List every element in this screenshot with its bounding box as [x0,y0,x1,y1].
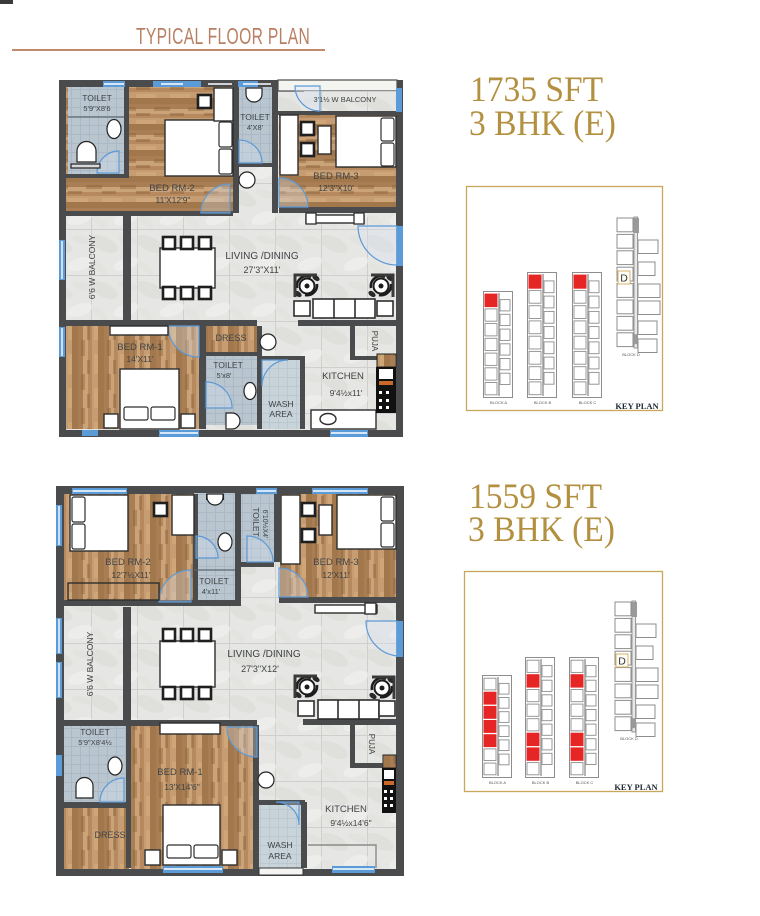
svg-text:BLOCK B: BLOCK B [532,780,550,785]
svg-text:BED RM-2: BED RM-2 [149,183,194,194]
svg-text:BED RM-3: BED RM-3 [313,171,358,182]
svg-text:WASH: WASH [267,840,292,850]
svg-text:27'3"X12': 27'3"X12' [241,664,279,674]
svg-text:13'X14'6": 13'X14'6" [164,782,200,792]
svg-text:TOILET: TOILET [251,507,261,537]
svg-text:D: D [620,273,628,285]
svg-text:12'X11': 12'X11' [322,570,350,580]
svg-text:KEY PLAN: KEY PLAN [615,401,659,411]
svg-text:TOILET: TOILET [213,360,243,370]
svg-text:D: D [618,656,626,668]
svg-text:BED RM-1: BED RM-1 [117,342,162,353]
svg-text:DRESS: DRESS [215,333,246,343]
svg-text:BLOCK D: BLOCK D [622,352,640,357]
svg-text:LIVING /DINING: LIVING /DINING [227,649,301,660]
svg-text:4'X8': 4'X8' [247,123,264,132]
svg-text:BED RM-1: BED RM-1 [157,767,202,778]
svg-text:27'3"X11': 27'3"X11' [244,265,281,275]
svg-text:9'4½x11': 9'4½x11' [330,388,363,398]
svg-text:TOILET: TOILET [199,576,229,586]
svg-text:PUJA: PUJA [370,331,379,352]
svg-text:KITCHEN: KITCHEN [325,804,367,815]
svg-text:BLOCK A: BLOCK A [490,400,507,405]
svg-text:KITCHEN: KITCHEN [322,371,364,382]
svg-text:LIVING /DINING: LIVING /DINING [225,251,299,262]
svg-text:KEY PLAN: KEY PLAN [614,782,658,792]
svg-text:12'3"X10': 12'3"X10' [318,183,354,193]
svg-text:AREA: AREA [268,851,291,861]
svg-text:BLOCK A: BLOCK A [489,780,506,785]
svg-text:11'X12'9": 11'X12'9" [156,195,191,205]
svg-text:5'x8': 5'x8' [217,371,233,380]
svg-text:4'x11': 4'x11' [202,587,221,596]
svg-text:AREA: AREA [269,409,292,419]
svg-text:BED RM-2: BED RM-2 [105,557,150,568]
svg-text:6'10½X4': 6'10½X4' [261,510,269,539]
svg-text:TOILET: TOILET [82,93,112,103]
svg-text:PUJA: PUJA [367,734,376,755]
svg-text:BLOCK C: BLOCK C [579,400,597,405]
svg-text:BLOCK C: BLOCK C [576,780,594,785]
svg-text:DRESS: DRESS [94,830,125,840]
svg-text:TOILET: TOILET [80,727,110,737]
svg-text:14'X11': 14'X11' [126,354,154,364]
svg-text:5'9"X8'4½: 5'9"X8'4½ [78,738,112,747]
svg-text:BLOCK B: BLOCK B [534,400,552,405]
svg-text:6'6 W BALCONY: 6'6 W BALCONY [87,234,97,299]
svg-text:BLOCK D: BLOCK D [620,736,638,741]
svg-text:12'7½X11': 12'7½X11' [111,570,150,580]
svg-text:5'9"X8'6: 5'9"X8'6 [83,104,110,113]
svg-text:TOILET: TOILET [240,112,270,122]
svg-text:9'4½x14'6": 9'4½x14'6" [330,818,371,828]
svg-text:6'6 W BALCONY: 6'6 W BALCONY [85,631,95,696]
svg-text:BED RM-3: BED RM-3 [313,557,358,568]
svg-text:WASH: WASH [268,399,293,409]
svg-text:3'1½ W BALCONY: 3'1½ W BALCONY [313,95,376,104]
